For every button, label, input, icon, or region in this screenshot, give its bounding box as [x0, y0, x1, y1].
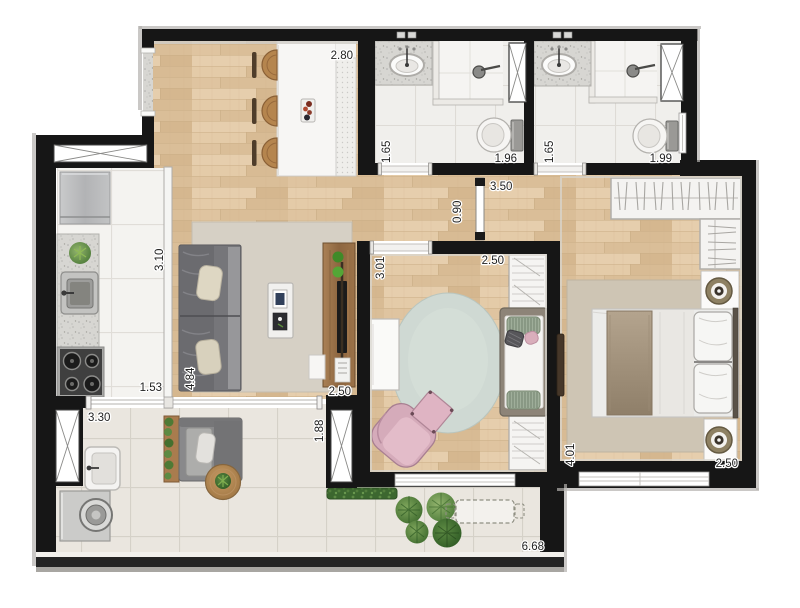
svg-text:2.80: 2.80 [331, 50, 353, 62]
svg-text:0.90: 0.90 [452, 201, 464, 223]
svg-text:4.84: 4.84 [185, 367, 197, 390]
svg-text:3.50: 3.50 [490, 181, 512, 193]
svg-text:2.50: 2.50 [716, 458, 738, 470]
svg-text:3.10: 3.10 [154, 249, 166, 271]
svg-text:6.68: 6.68 [522, 541, 544, 553]
svg-text:1.88: 1.88 [314, 420, 326, 442]
svg-text:1.53: 1.53 [140, 382, 162, 394]
svg-text:1.65: 1.65 [544, 141, 556, 163]
svg-text:2.50: 2.50 [329, 386, 351, 398]
svg-text:3.01: 3.01 [375, 257, 387, 279]
svg-text:1.96: 1.96 [495, 153, 517, 165]
svg-text:1.65: 1.65 [381, 141, 393, 163]
svg-text:2.50: 2.50 [482, 255, 504, 267]
svg-text:1.99: 1.99 [650, 153, 672, 165]
svg-text:4.01: 4.01 [565, 444, 577, 466]
svg-text:3.30: 3.30 [88, 412, 110, 424]
